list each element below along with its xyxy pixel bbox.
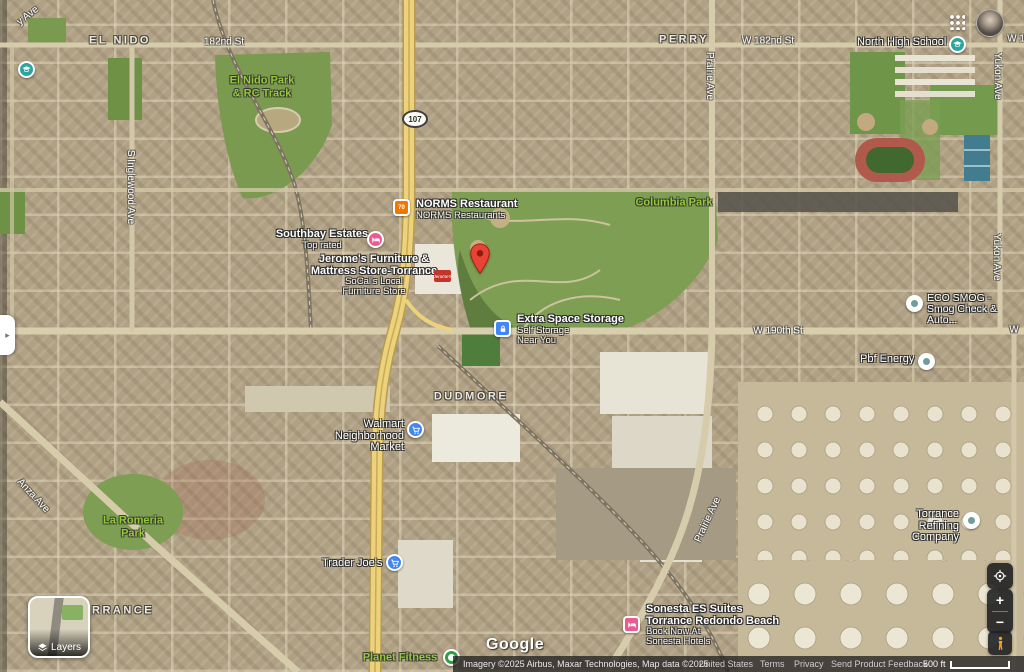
neighborhood-label-perry: PERRY <box>659 34 709 47</box>
poi-eco-smog[interactable]: ECO SMOG - Smog Check & Auto... <box>927 293 1024 326</box>
route-107-shield: 107 <box>402 110 428 128</box>
poi-torrance-refining[interactable]: Torrance Refining Company <box>875 509 959 544</box>
park-label-el-nido-park[interactable]: El Nido Park & RC Track <box>230 74 295 99</box>
bed-icon <box>627 620 637 630</box>
poi-title: Trader Joe's <box>322 558 382 570</box>
school-icon[interactable] <box>18 61 35 78</box>
account-avatar[interactable] <box>976 9 1004 37</box>
poi-walmart[interactable]: Walmart Neighborhood Market <box>300 419 404 454</box>
chevron-right-icon: ▸ <box>5 330 10 341</box>
poi-subtitle: Top rated <box>276 241 368 251</box>
poi-title: Company <box>875 532 959 544</box>
park-label-line: La Romeria <box>103 514 163 527</box>
eco-smog-marker-icon[interactable] <box>906 295 923 312</box>
park-label-columbia[interactable]: Columbia Park <box>635 197 712 210</box>
park-label-line: El Nido Park <box>230 74 295 87</box>
poi-title: Neighborhood Market <box>300 431 404 454</box>
neighborhood-label-dudmore: DUDMORE <box>434 391 508 404</box>
layers-icon <box>37 642 48 653</box>
poi-norms[interactable]: NORMS Restaurant NORMS Restaurants <box>416 199 517 221</box>
poi-subtitle: Near You <box>517 336 624 346</box>
street-label-w182nd-edge: W 1 <box>1007 33 1024 45</box>
attribution-bar: Imagery ©2025 Airbus, Maxar Technologies… <box>453 656 1024 672</box>
street-label-yukon-mid: Yukon Ave <box>990 233 1002 280</box>
poi-trader-joes[interactable]: Trader Joe's <box>322 558 382 570</box>
poi-label-planet-fitness[interactable]: Planet Fitness <box>363 652 438 665</box>
poi-extra-space-storage[interactable]: Extra Space Storage Self Storage Near Yo… <box>517 314 624 345</box>
poi-subtitle: Sonesta Hotels <box>646 637 779 647</box>
lock-icon <box>498 324 508 334</box>
street-label-prairie-top: Prairie Ave <box>703 52 715 100</box>
zoom-in-button[interactable]: + <box>987 589 1013 611</box>
poi-southbay-estates[interactable]: Southbay Estates Top rated <box>276 229 368 251</box>
pbf-energy-marker-icon[interactable] <box>918 353 935 370</box>
my-location-icon <box>993 569 1007 583</box>
poi-title: Torrance Refining <box>875 509 959 532</box>
poi-title: North High School <box>857 37 946 49</box>
neighborhood-label-el-nido: EL NIDO <box>89 35 151 48</box>
poi-subtitle: Furniture Store <box>311 287 437 297</box>
graduation-cap-icon <box>952 39 963 50</box>
norms-icon-text: 70 <box>398 205 405 211</box>
southbay-lodging-icon[interactable] <box>367 231 384 248</box>
street-label-w182nd: W 182nd St <box>742 35 794 47</box>
jeromes-building-logo: Jerome's <box>434 270 451 282</box>
google-logo[interactable]: Google <box>486 636 544 654</box>
poi-title: Walmart <box>300 419 404 431</box>
privacy-link[interactable]: Privacy <box>794 659 824 669</box>
street-label-w190th: W 190th St <box>753 325 802 337</box>
parking-lots <box>718 192 958 212</box>
country-link[interactable]: United States <box>699 659 753 669</box>
scale-bar <box>950 661 1010 669</box>
north-high-school-icon[interactable] <box>949 36 966 53</box>
side-panel-toggle[interactable]: ▸ <box>0 315 15 355</box>
poi-title: Sonesta ES Suites <box>646 604 779 616</box>
extra-space-lock-icon[interactable] <box>494 320 511 337</box>
poi-title: Pbf Energy <box>860 354 914 366</box>
map-features <box>0 0 1024 672</box>
poi-pbf-energy[interactable]: Pbf Energy <box>860 354 914 366</box>
shopping-cart-icon <box>411 425 421 435</box>
poi-subtitle: NORMS Restaurants <box>416 211 517 221</box>
torrance-refining-marker-icon[interactable] <box>963 512 980 529</box>
layers-control[interactable]: Layers <box>28 596 90 658</box>
scale-label: 500 ft <box>923 659 946 669</box>
park-label-line: Park <box>103 527 163 540</box>
street-label-yukon-top: Yukon Ave <box>991 52 1003 99</box>
street-label-inglewood: S Inglewood Ave <box>124 150 136 224</box>
google-apps-grid-icon[interactable] <box>948 13 965 30</box>
poi-title: NORMS Restaurant <box>416 199 517 211</box>
pegman-icon <box>994 636 1007 651</box>
layers-label: Layers <box>51 642 81 653</box>
street-label-182nd: 182nd St <box>204 36 244 48</box>
poi-title: Smog Check & Auto... <box>927 304 1024 326</box>
zoom-control[interactable]: + − <box>987 589 1013 633</box>
pegman-button[interactable] <box>988 631 1012 655</box>
shopping-cart-icon <box>390 558 400 568</box>
layers-thumbnail-park <box>62 605 83 620</box>
poi-sonesta[interactable]: Sonesta ES Suites Torrance Redondo Beach… <box>646 604 779 647</box>
graduation-cap-icon <box>21 64 32 75</box>
map-pin-icon <box>469 243 491 274</box>
norms-logo-icon[interactable]: 70 <box>393 199 410 216</box>
poi-jeromes[interactable]: Jerome's Furniture & Mattress Store-Torr… <box>311 254 437 297</box>
park-label-line: & RC Track <box>230 87 295 100</box>
red-destination-pin[interactable] <box>469 243 491 279</box>
poi-north-high-school[interactable]: North High School <box>857 37 946 49</box>
feedback-link[interactable]: Send Product Feedback <box>831 659 928 669</box>
walmart-marker-icon[interactable] <box>407 421 424 438</box>
my-location-button[interactable] <box>987 563 1013 589</box>
poi-title: Extra Space Storage <box>517 314 624 326</box>
terms-link[interactable]: Terms <box>760 659 785 669</box>
trader-joes-marker-icon[interactable] <box>386 554 403 571</box>
sonesta-lodging-icon[interactable] <box>623 616 640 633</box>
zoom-out-button[interactable]: − <box>987 612 1013 634</box>
poi-title: Jerome's Furniture & <box>311 254 437 266</box>
map-canvas[interactable]: EL NIDO PERRY DUDMORE TORRANCE 182nd St … <box>0 0 1024 672</box>
park-label-la-romeria[interactable]: La Romeria Park <box>103 514 163 539</box>
bed-icon <box>371 235 381 245</box>
poi-title: Southbay Estates <box>276 229 368 241</box>
imagery-attribution: Imagery ©2025 Airbus, Maxar Technologies… <box>463 659 709 669</box>
